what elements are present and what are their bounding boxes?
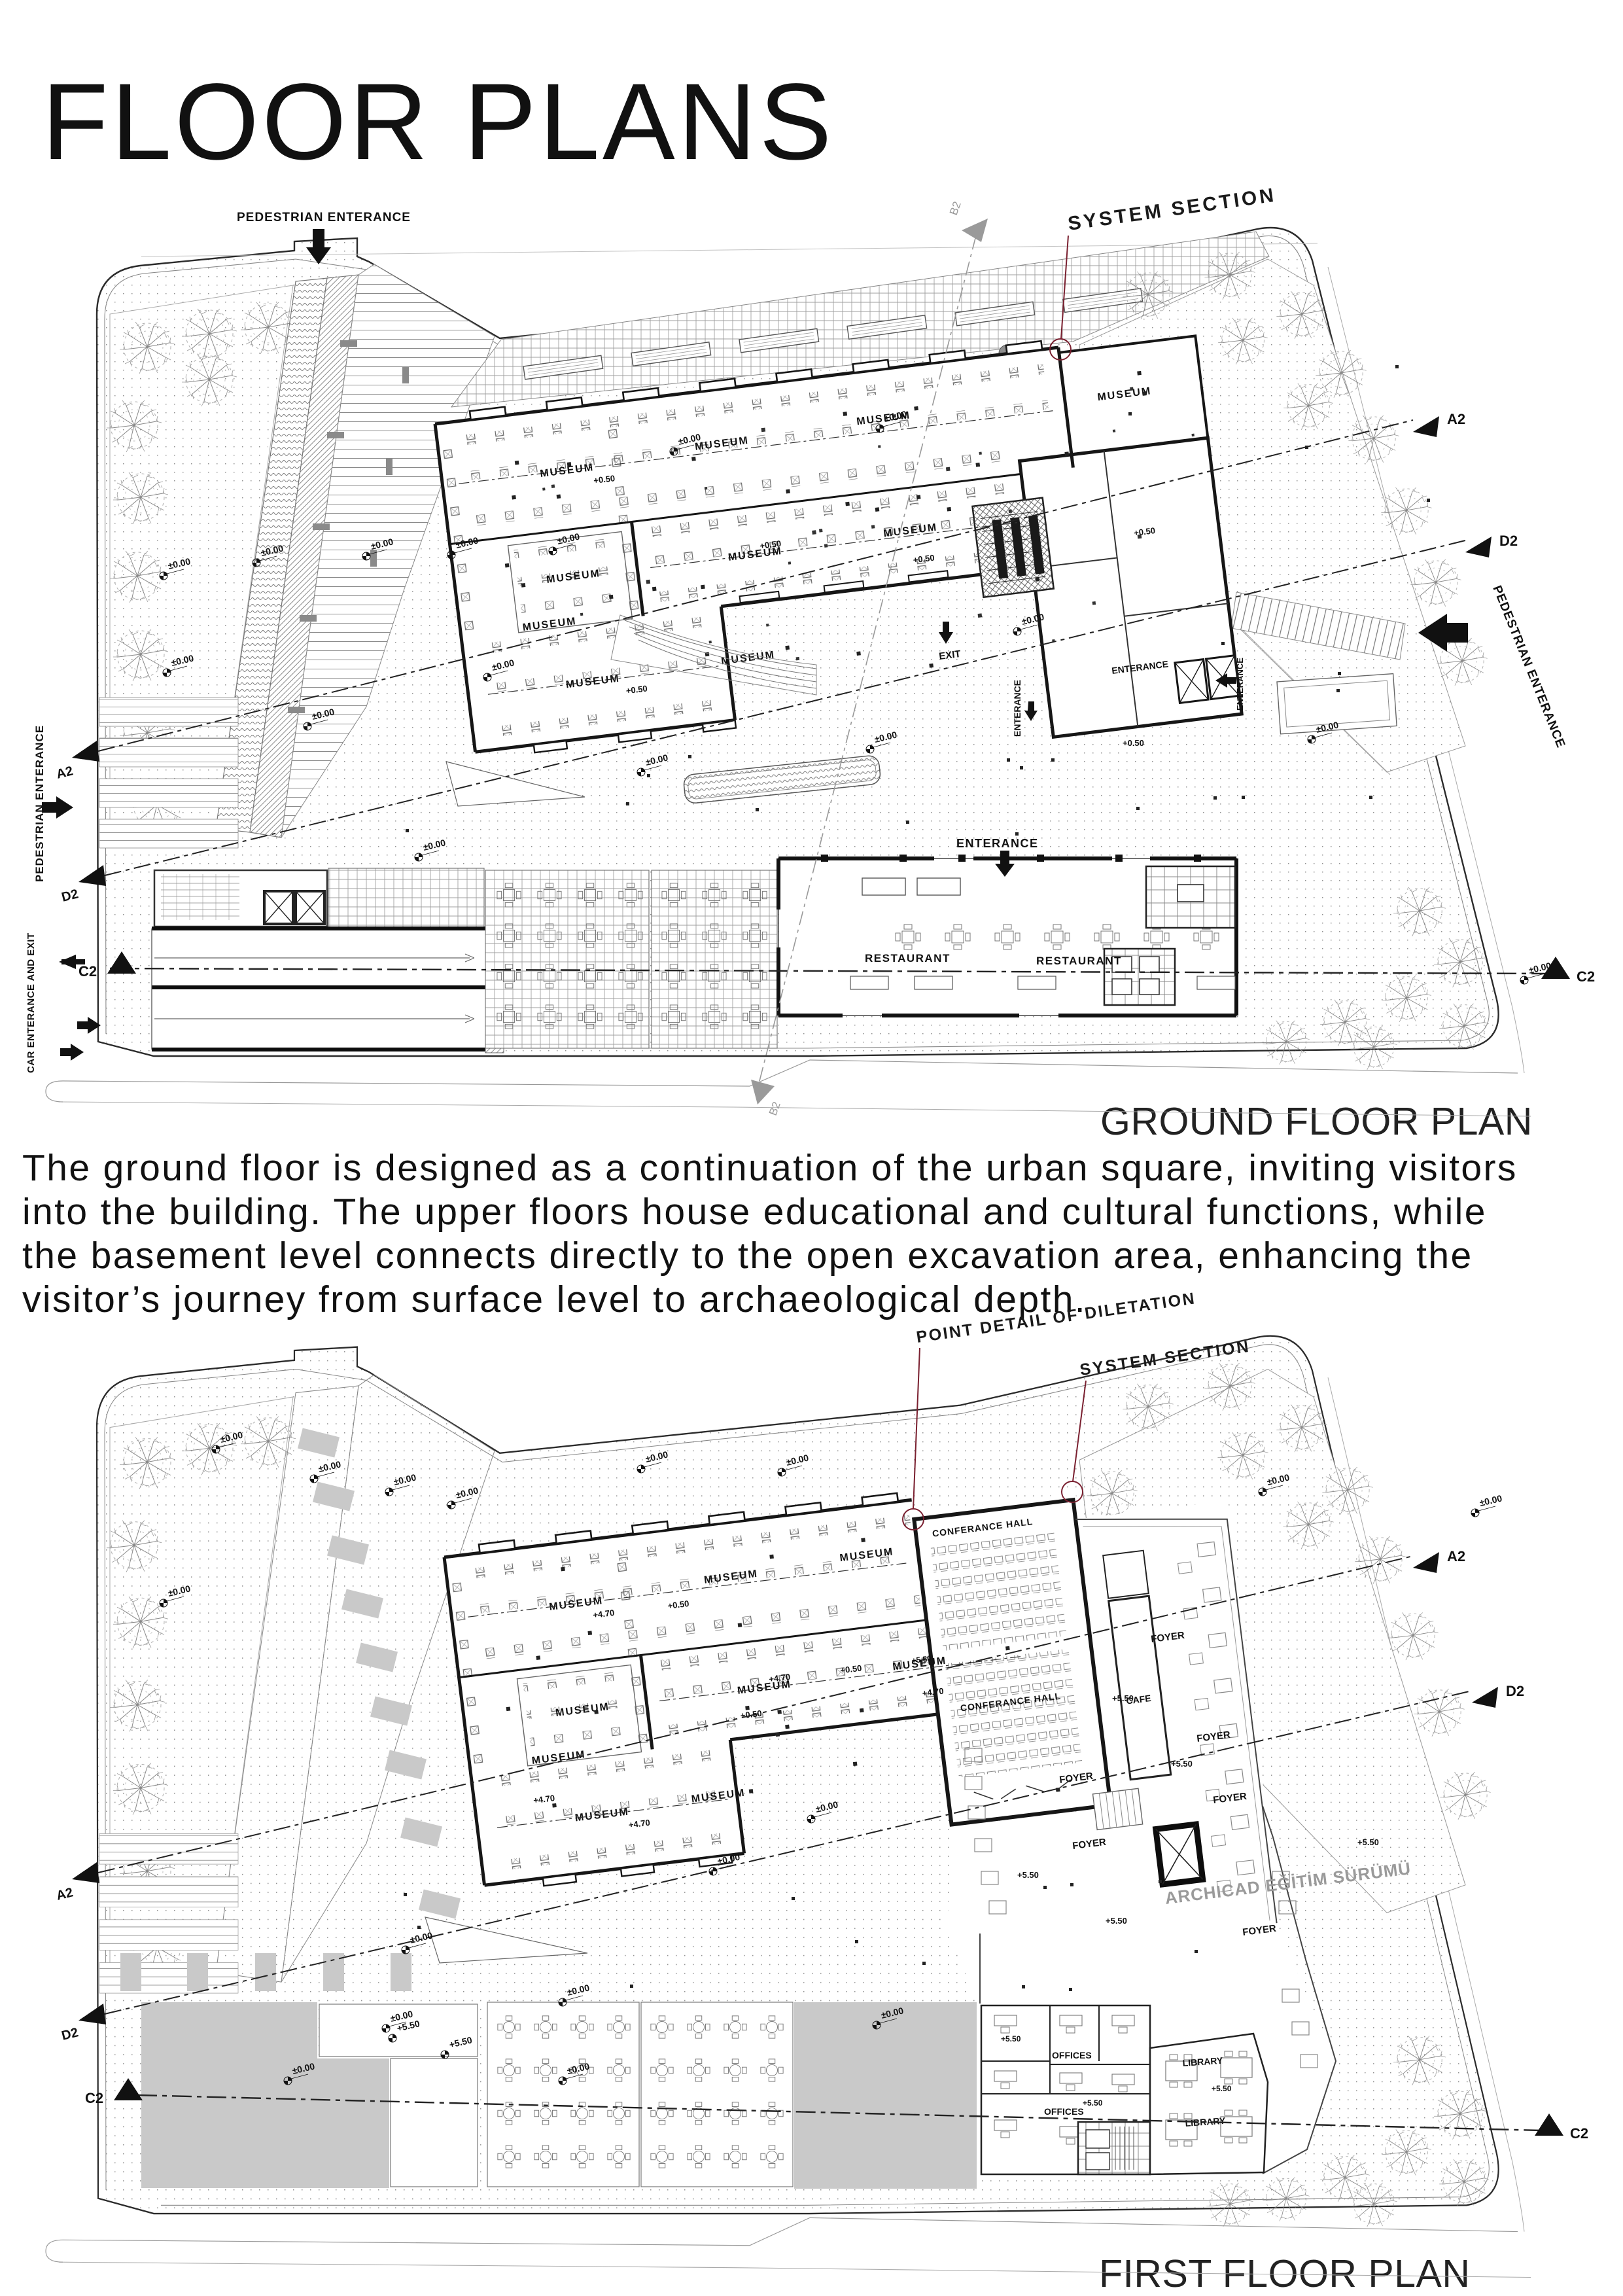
svg-text:ENTERANCE: ENTERANCE <box>1012 680 1022 737</box>
svg-text:POINT DETAIL OF DILETATION: POINT DETAIL OF DILETATION <box>915 1289 1197 1347</box>
svg-text:+5.50: +5.50 <box>1357 1837 1379 1847</box>
svg-text:PEDESTRIAN ENTERANCE: PEDESTRIAN ENTERANCE <box>1490 584 1567 750</box>
svg-text:+5.50: +5.50 <box>1083 2098 1103 2108</box>
svg-text:+5.50: +5.50 <box>1212 2084 1232 2093</box>
svg-text:+5.50: +5.50 <box>1112 1693 1134 1703</box>
svg-text:ENTERANCE: ENTERANCE <box>1235 658 1245 711</box>
svg-text:SYSTEM SECTION: SYSTEM SECTION <box>1066 185 1278 235</box>
svg-text:±0.00: ±0.00 <box>1478 1492 1503 1508</box>
svg-text:B2: B2 <box>947 200 964 217</box>
svg-text:+5.50: +5.50 <box>1106 1916 1127 1926</box>
svg-text:D2: D2 <box>1499 533 1518 549</box>
svg-text:C2: C2 <box>1570 2125 1588 2142</box>
svg-text:B2: B2 <box>767 1100 783 1117</box>
svg-text:A2: A2 <box>1447 1548 1465 1564</box>
svg-text:OFFICES: OFFICES <box>1044 2106 1084 2117</box>
svg-text:RESTAURANT: RESTAURANT <box>865 952 951 964</box>
svg-text:C2: C2 <box>79 963 97 980</box>
svg-text:+5.50: +5.50 <box>1171 1759 1193 1769</box>
svg-text:RESTAURANT: RESTAURANT <box>1036 955 1122 967</box>
svg-text:C2: C2 <box>85 2090 103 2106</box>
svg-text:+5.50: +5.50 <box>1017 1870 1039 1880</box>
svg-text:D2: D2 <box>60 2025 80 2043</box>
svg-text:D2: D2 <box>1506 1683 1524 1699</box>
svg-text:D2: D2 <box>60 887 80 905</box>
svg-text:A2: A2 <box>1447 411 1465 427</box>
svg-text:PEDESTRIAN ENTERANCE: PEDESTRIAN ENTERANCE <box>237 211 411 224</box>
svg-text:ENTERANCE: ENTERANCE <box>956 837 1039 850</box>
svg-text:+5.50: +5.50 <box>1001 2034 1021 2043</box>
svg-text:A2: A2 <box>55 764 75 782</box>
svg-text:CAR ENTERANCE AND EXIT: CAR ENTERANCE AND EXIT <box>26 932 37 1073</box>
svg-text:+0.50: +0.50 <box>1123 738 1144 748</box>
svg-text:OFFICES: OFFICES <box>1052 2050 1092 2060</box>
svg-text:A2: A2 <box>55 1885 75 1903</box>
svg-text:C2: C2 <box>1577 968 1595 985</box>
